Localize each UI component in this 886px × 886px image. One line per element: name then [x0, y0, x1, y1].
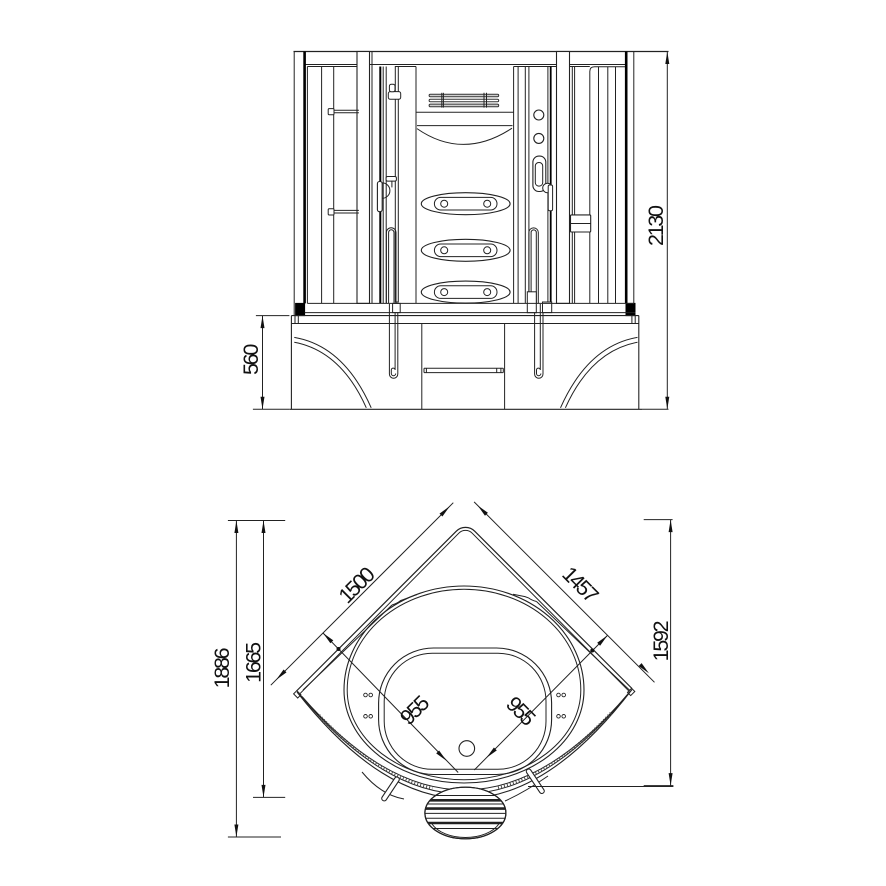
- svg-text:1886: 1886: [210, 647, 234, 688]
- svg-text:2130: 2130: [644, 205, 668, 246]
- svg-text:1665: 1665: [242, 642, 266, 683]
- svg-text:560: 560: [239, 344, 263, 375]
- svg-text:1592: 1592: [649, 621, 673, 661]
